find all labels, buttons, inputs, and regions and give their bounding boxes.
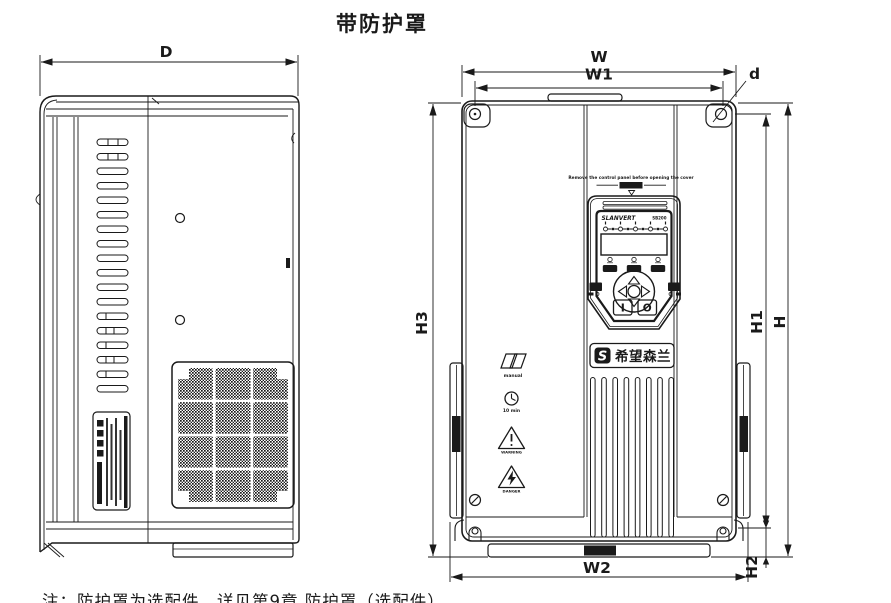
- stop-key-glyph: O: [643, 303, 652, 315]
- side-rail-left: [450, 363, 463, 518]
- keyhole-slots: [455, 520, 743, 541]
- dimension-drawing-page: 带防护罩: [0, 0, 891, 603]
- side-foot: [173, 543, 293, 557]
- danger-icon-label: DANGER: [503, 489, 521, 494]
- safety-icons: manual 10 min WARNING DANGER: [499, 354, 527, 494]
- side-latch-mark: [286, 258, 290, 268]
- dim-W1-label: W1: [585, 66, 613, 84]
- logo-symbol: S: [598, 350, 607, 365]
- side-holes: [176, 214, 185, 325]
- dim-H3-label: H3: [413, 311, 431, 335]
- bottom-screws: [470, 495, 729, 506]
- bottom-plate: [488, 544, 710, 557]
- keypad-display: [601, 234, 667, 255]
- dim-H1-label: H1: [748, 310, 766, 334]
- dimensions: D W W1 d H3 H1 H W2 H2: [40, 43, 793, 582]
- front-view: Remove the control panel before opening …: [450, 94, 750, 557]
- dim-W2-label: W2: [583, 559, 611, 577]
- logo-text: 希望森兰: [615, 348, 671, 365]
- left-arrow-icon: [619, 286, 627, 297]
- side-rail-right: [737, 363, 750, 518]
- dim-H-label: H: [771, 316, 789, 329]
- top-handle: [548, 94, 622, 101]
- clock-icon: [505, 392, 518, 405]
- key-labels: [589, 293, 682, 296]
- manual-icon: [501, 354, 526, 368]
- run-stop-keys: I O: [614, 300, 657, 315]
- danger-icon: [499, 466, 525, 488]
- dim-d-label: d: [749, 65, 760, 83]
- page-title: 带防护罩: [336, 12, 428, 36]
- cover-warning-text: Remove the control panel before opening …: [568, 175, 694, 181]
- up-arrow-icon: [629, 277, 640, 285]
- nameplate: [93, 412, 130, 510]
- mounting-tab-right: [706, 104, 732, 127]
- keypad-brand-text: SLANVERT: [602, 216, 637, 222]
- warning-icon: [499, 427, 525, 449]
- keypad-model-text: SB200: [652, 216, 666, 221]
- right-soft-key: [668, 283, 681, 292]
- front-outline: [462, 101, 736, 541]
- keypad: SLANVERT SB200: [588, 196, 681, 329]
- warning-icon-label: WARNING: [501, 450, 522, 455]
- status-indicators: [604, 222, 668, 232]
- dim-H2-label: H2: [743, 555, 761, 579]
- left-soft-key: [590, 283, 603, 292]
- manual-icon-label: manual: [504, 373, 523, 379]
- clock-icon-label: 10 min: [503, 408, 520, 414]
- dim-D-label: D: [160, 43, 173, 61]
- function-keys: [603, 257, 665, 272]
- vent-ribs: [591, 378, 674, 538]
- run-key-glyph: I: [621, 302, 625, 315]
- brand-logo: S 希望森兰: [590, 344, 674, 368]
- footnote: 注：防护罩为选配件，详见第9章 防护罩（选配件）: [42, 592, 445, 603]
- dim-W-label: W: [590, 48, 607, 66]
- side-view: [36, 96, 299, 557]
- side-vent-slots: [97, 139, 128, 392]
- fan-grille: [172, 362, 294, 508]
- right-arrow-icon: [642, 286, 650, 297]
- drawing-svg: 带防护罩: [0, 0, 891, 603]
